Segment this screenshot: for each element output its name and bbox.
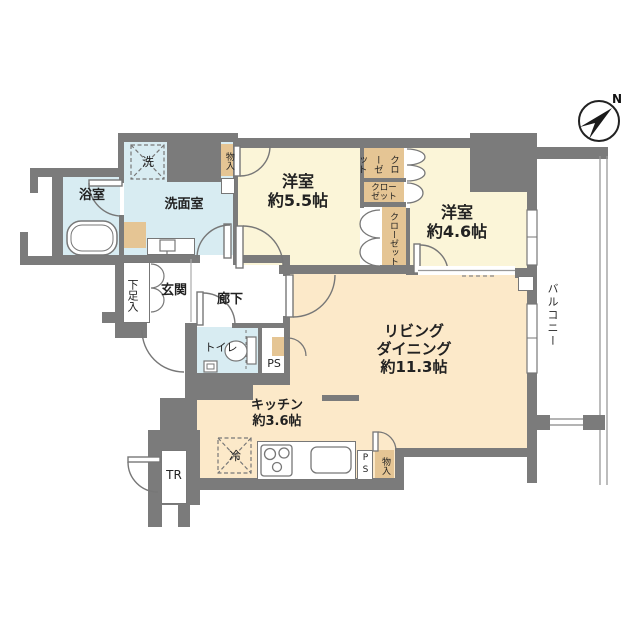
wall [118,142,124,175]
storage-top-lower-box [221,178,235,194]
compass-n-label: N [612,92,622,106]
bedroom1-area: 約5.5帖 [246,191,350,210]
bedroom2-label: 洋室 約4.6帖 [405,203,509,241]
wall [185,373,290,385]
window [527,210,537,265]
bedroom2-area: 約4.6帖 [405,222,509,241]
ps-mid-label: PS [262,357,286,370]
living-area: 約11.3帖 [346,358,482,376]
entrance-label: 玄関 [152,283,196,299]
wall [470,133,537,192]
wall [395,448,528,457]
bedroom2-name: 洋室 [405,203,509,222]
wall [527,192,537,210]
wall [118,133,238,142]
shoe-cabinet-label: 下足入 [127,270,138,320]
entrance-door-arc [142,330,184,372]
bathroom-label: 浴室 [66,188,118,204]
bedroom1-label: 洋室 約5.5帖 [246,172,350,210]
wall [527,448,537,483]
balcony-railing [600,156,607,485]
wall [52,255,123,265]
closet-right-top-label: クローゼット [367,150,401,178]
wall [119,175,124,183]
folding-door [360,210,380,266]
kitchen-label: キッチン 約3.6帖 [225,398,329,429]
compass-icon: N [579,92,622,141]
wall [406,265,418,275]
closet-right-mid-label: クローゼット [369,184,399,202]
trunk-room-label: TR [161,468,187,482]
wall [360,142,364,208]
ps-bottom-label: PS [361,453,370,476]
fridge-label: 冷 [220,449,250,463]
hallway-label: 廊下 [208,292,252,308]
toilet-label: トイレ [199,341,243,354]
wall [527,373,537,448]
wall [533,147,608,159]
wall [102,312,115,323]
wall [30,168,120,177]
kitchen-name: キッチン [225,398,329,414]
bathroom-floor [63,175,120,255]
bedroom1-name: 洋室 [246,172,350,191]
storage-bottom-label: 物入 [380,453,389,478]
wall [20,232,28,256]
window [527,304,537,373]
wall [167,142,221,182]
washroom-sink-counter [147,238,195,255]
living-label: リビング ダイニング 約11.3帖 [346,322,482,376]
closet-left-label: クローゼット [388,211,397,267]
kitchen-area: 約3.6帖 [225,414,329,430]
wall [362,202,406,207]
living-line1: リビング [346,322,482,340]
kitchen-counter [257,441,356,480]
wall [119,215,124,255]
wall [362,178,406,182]
wall [115,323,147,338]
storage-top-label: 物入 [223,148,233,174]
wall [30,177,38,193]
wall [236,255,290,263]
wall [178,505,190,527]
living-line2: ダイニング [346,340,482,358]
washroom-cabinet [124,222,146,248]
floor-plan: N 浴室 洗面室 洗 洋室 約5.5帖 洋室 約4.6帖 リビング ダイニング … [0,0,640,640]
washer-label: 洗 [133,155,163,169]
bedroom2-floor [410,148,470,192]
wall-niche-box [518,276,534,291]
wall [233,138,473,148]
wall [148,505,162,527]
wall [52,168,63,258]
balcony-divider [528,415,605,430]
washroom-label: 洗面室 [152,197,216,213]
balcony-label: バルコニー [547,280,558,350]
